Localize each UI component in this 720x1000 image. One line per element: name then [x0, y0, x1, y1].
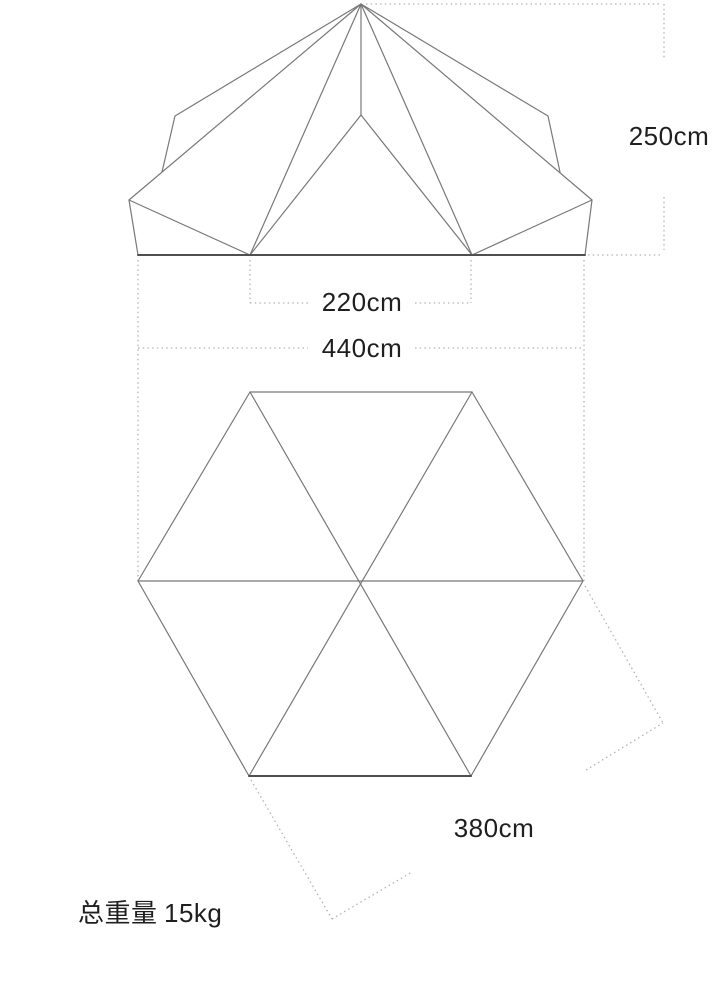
- dimension-guides: [138, 4, 664, 919]
- overall-width-dim-label: 440cm: [322, 333, 403, 363]
- elevation-left-skirt-seam: [129, 200, 250, 255]
- elevation-door-left-edge: [250, 115, 361, 255]
- tent-spec-page: 250cm 220cm 440cm 380cm 总重量 15kg: [0, 0, 720, 1000]
- height-dim-label: 250cm: [629, 121, 710, 151]
- across-flats-dim-label: 380cm: [454, 813, 535, 843]
- front-elevation: [129, 4, 592, 255]
- tent-spec-diagram: 250cm 220cm 440cm 380cm 总重量 15kg: [0, 0, 720, 1000]
- hexagon-edges: [138, 392, 583, 776]
- floor-plan-hexagon: [138, 392, 583, 776]
- elevation-right-skirt-seam: [472, 200, 592, 255]
- elevation-seam-lines: [129, 4, 592, 255]
- elevation-left-roof-seam: [250, 4, 361, 255]
- dim-flats-line-left: [332, 872, 412, 919]
- dim-flats-upper-extension: [585, 586, 663, 723]
- elevation-left-edge: [129, 4, 361, 255]
- weight-label: 总重量: [78, 898, 158, 928]
- elevation-right-roof-seam: [361, 4, 472, 255]
- dim-flats-line-right: [586, 723, 663, 770]
- weight-value: 15kg: [164, 898, 222, 928]
- elevation-right-edge: [361, 4, 592, 255]
- inner-width-dim-label: 220cm: [322, 287, 403, 317]
- hexagon-diagonal-tr-bl: [249, 392, 472, 776]
- elevation-door-right-edge: [361, 115, 472, 255]
- dimension-labels: 250cm 220cm 440cm 380cm 总重量 15kg: [78, 121, 709, 928]
- dim-flats-lower-extension: [251, 780, 332, 919]
